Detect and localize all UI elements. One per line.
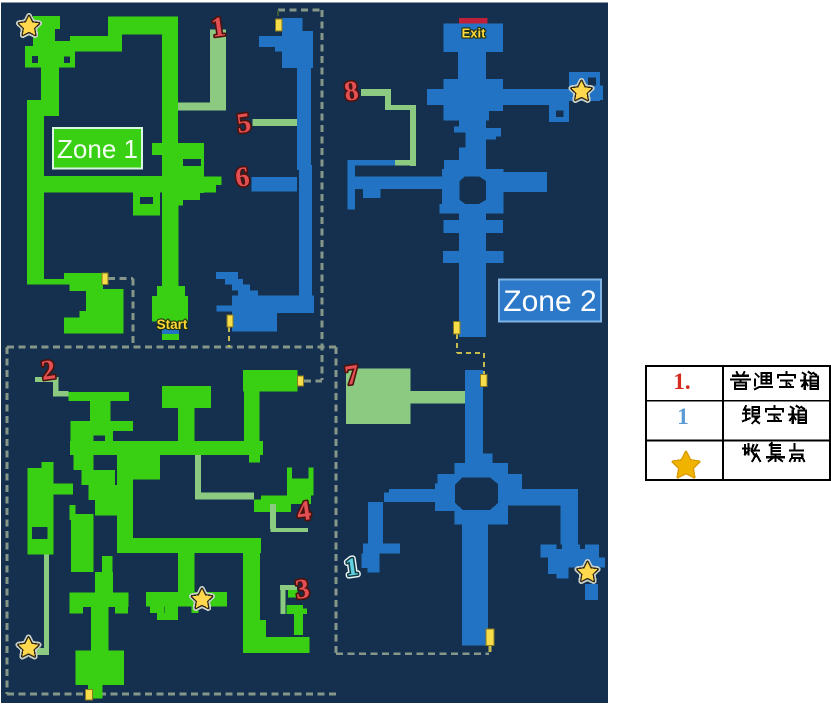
svg-text:Zone 1: Zone 1 bbox=[57, 134, 138, 164]
svg-text:1.: 1. bbox=[673, 369, 690, 394]
svg-text:1: 1 bbox=[677, 404, 689, 429]
svg-text:Zone 2: Zone 2 bbox=[503, 285, 596, 318]
svg-text:Exit: Exit bbox=[462, 26, 487, 41]
svg-text:Start: Start bbox=[157, 317, 188, 332]
